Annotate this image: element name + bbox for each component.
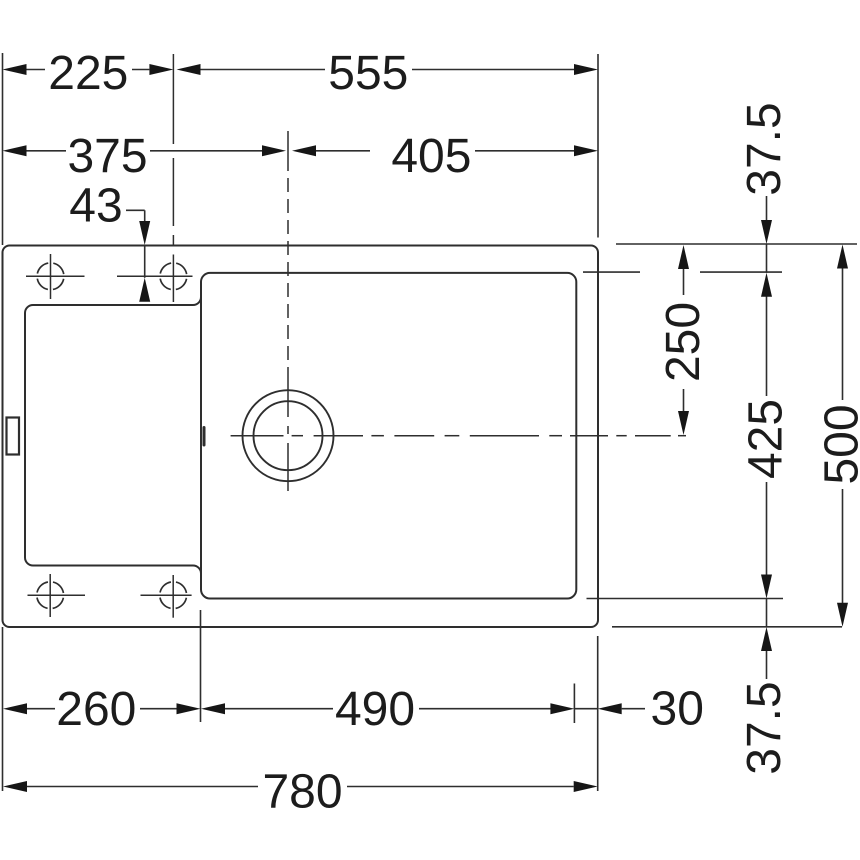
svg-text:555: 555: [328, 47, 408, 100]
svg-text:405: 405: [391, 130, 471, 183]
svg-text:250: 250: [657, 302, 710, 382]
svg-text:260: 260: [56, 683, 136, 736]
svg-text:37.5: 37.5: [738, 681, 791, 774]
svg-text:500: 500: [816, 404, 860, 484]
svg-text:225: 225: [48, 47, 128, 100]
svg-text:37.5: 37.5: [738, 102, 791, 195]
svg-text:30: 30: [651, 683, 704, 736]
svg-text:375: 375: [67, 130, 147, 183]
svg-text:780: 780: [262, 766, 342, 819]
svg-text:490: 490: [335, 683, 415, 736]
svg-text:43: 43: [69, 180, 122, 233]
svg-text:425: 425: [740, 399, 793, 479]
